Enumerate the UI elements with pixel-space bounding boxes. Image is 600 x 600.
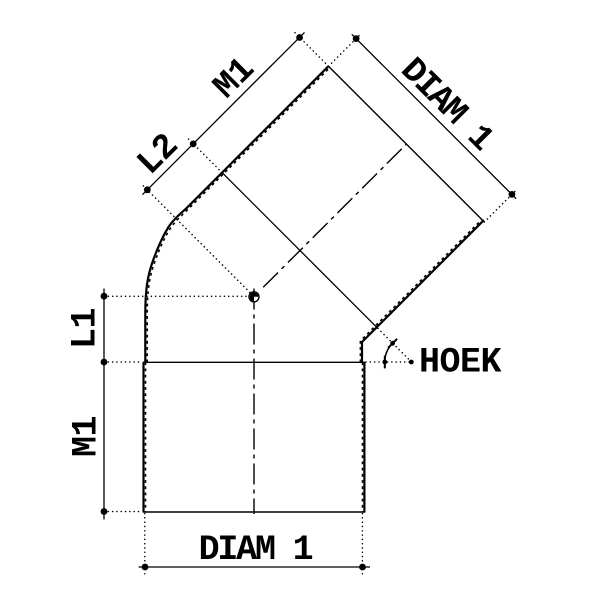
svg-text:HOEK: HOEK — [419, 343, 502, 383]
svg-text:L1: L1 — [66, 308, 106, 349]
svg-text:L2: L2 — [130, 126, 187, 183]
svg-text:M1: M1 — [67, 416, 107, 457]
svg-text:DIAM 1: DIAM 1 — [392, 50, 501, 159]
svg-text:DIAM 1: DIAM 1 — [199, 530, 313, 570]
svg-text:M1: M1 — [206, 50, 263, 107]
